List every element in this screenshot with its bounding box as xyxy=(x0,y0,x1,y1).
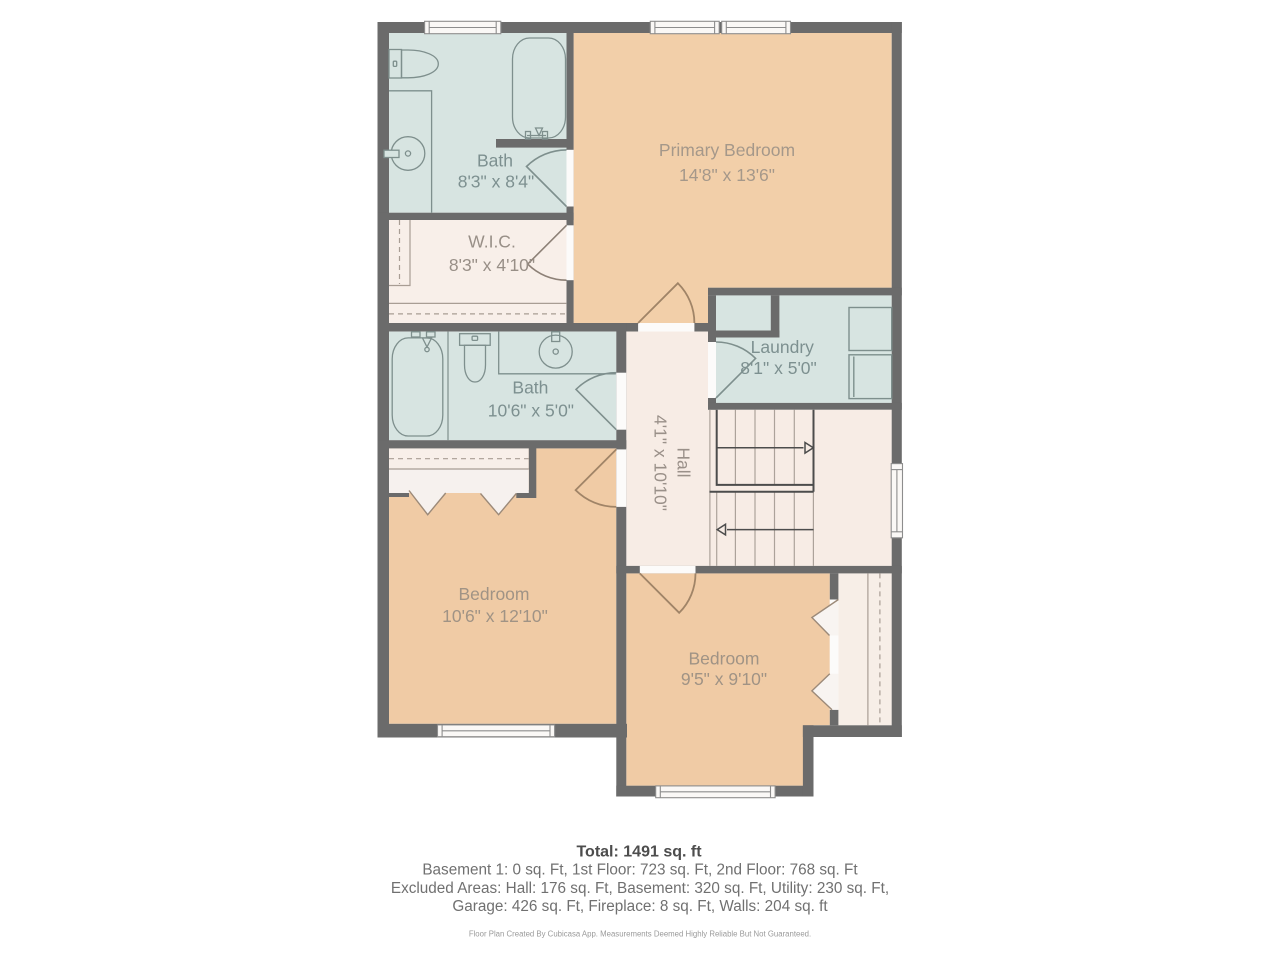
svg-text:Laundry: Laundry xyxy=(751,337,814,357)
svg-text:10'6" x 5'0": 10'6" x 5'0" xyxy=(488,401,574,421)
svg-text:14'8" x 13'6": 14'8" x 13'6" xyxy=(679,165,775,185)
svg-text:Basement 1: 0 sq. Ft, 1st Floo: Basement 1: 0 sq. Ft, 1st Floor: 723 sq.… xyxy=(422,862,858,879)
svg-text:4'1" x 10'10": 4'1" x 10'10" xyxy=(651,415,671,511)
svg-text:9'5" x 9'10": 9'5" x 9'10" xyxy=(681,669,767,689)
svg-text:10'6" x 12'10": 10'6" x 12'10" xyxy=(442,606,548,626)
svg-text:Hall: Hall xyxy=(674,447,694,477)
svg-text:Garage: 426 sq. Ft, Fireplace:: Garage: 426 sq. Ft, Fireplace: 8 sq. Ft,… xyxy=(452,898,828,915)
svg-text:Primary Bedroom: Primary Bedroom xyxy=(659,140,795,160)
svg-text:8'3" x 8'4": 8'3" x 8'4" xyxy=(458,172,535,192)
svg-text:Bedroom: Bedroom xyxy=(688,649,759,669)
svg-text:Bedroom: Bedroom xyxy=(458,584,529,604)
svg-text:W.I.C.: W.I.C. xyxy=(468,232,516,252)
svg-text:Excluded Areas: Hall: 176 sq.: Excluded Areas: Hall: 176 sq. Ft, Baseme… xyxy=(391,880,889,897)
svg-text:8'3" x 4'10": 8'3" x 4'10" xyxy=(449,255,535,275)
svg-text:Bath: Bath xyxy=(477,151,513,171)
svg-text:Floor Plan Created By Cubicasa: Floor Plan Created By Cubicasa App. Meas… xyxy=(469,930,811,939)
svg-text:Bath: Bath xyxy=(512,378,548,398)
svg-text:Total: 1491 sq. ft: Total: 1491 sq. ft xyxy=(576,844,702,861)
svg-text:8'1" x 5'0": 8'1" x 5'0" xyxy=(740,358,817,378)
